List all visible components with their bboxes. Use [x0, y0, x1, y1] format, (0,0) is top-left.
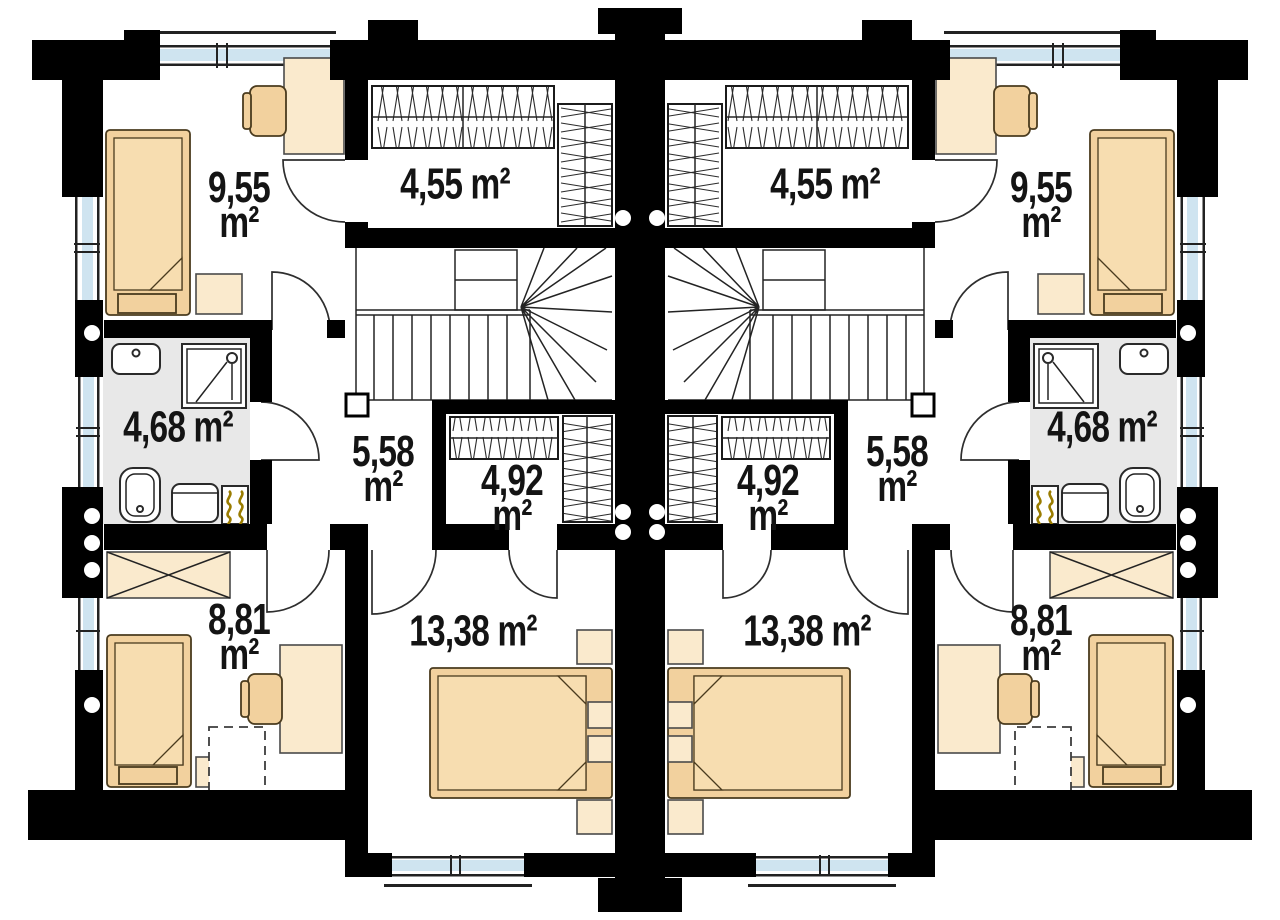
left-unit	[28, 8, 640, 912]
door-closet-to-bedroom-main	[509, 550, 557, 598]
door-bedroom-to-wardrobe	[283, 160, 345, 222]
area-label-bedroom-lower-left: 8,81m²	[208, 602, 270, 672]
desk	[280, 645, 342, 753]
towel-radiator	[222, 486, 248, 524]
floor-plan: 9,55m² 4,55m² 4,68m² 5,58m² 4,92m² 8,81m…	[0, 0, 1280, 920]
area-label-bedroom-lower-right: 8,81m²	[1010, 603, 1072, 673]
stair-post	[346, 394, 368, 416]
nightstand	[196, 274, 242, 314]
area-label-bedroom-main-left: 13,38m²	[409, 613, 537, 648]
chair	[250, 86, 286, 136]
shower	[182, 344, 246, 408]
area-label-bedroom-upper-right: 9,55m²	[1010, 170, 1072, 240]
area-label-hall-left: 5,58m²	[352, 434, 414, 504]
area-label-bedroom-main-right: 13,38m²	[743, 613, 871, 648]
bedroom-lower-furniture	[107, 552, 342, 808]
door-bathroom	[261, 402, 319, 460]
area-label-bedroom-upper-left: 9,55m²	[208, 170, 270, 240]
boiler	[172, 484, 218, 522]
area-label-bathroom-right: 4,68m²	[1047, 409, 1157, 444]
area-label-closet-right: 4,92m²	[737, 463, 799, 533]
area-label-bathroom-left: 4,68m²	[123, 409, 233, 444]
nightstand	[577, 800, 612, 834]
door-hall-to-bedroom-upper	[272, 272, 330, 330]
right-unit-mirrored	[640, 8, 1252, 912]
winder-staircase	[346, 248, 612, 416]
door-bedroom-main	[372, 550, 436, 614]
floor-plan-drawing	[0, 0, 1280, 920]
chair	[248, 674, 282, 724]
area-label-hall-right: 5,58m²	[866, 434, 928, 504]
area-label-wardrobe-upper-right: 4,55m²	[770, 166, 880, 201]
area-label-closet-left: 4,92m²	[481, 463, 543, 533]
door-bedroom-lower	[267, 550, 329, 612]
area-label-wardrobe-upper-left: 4,55m²	[400, 166, 510, 201]
nightstand	[577, 630, 612, 664]
bedroom-main-furniture	[430, 630, 612, 834]
